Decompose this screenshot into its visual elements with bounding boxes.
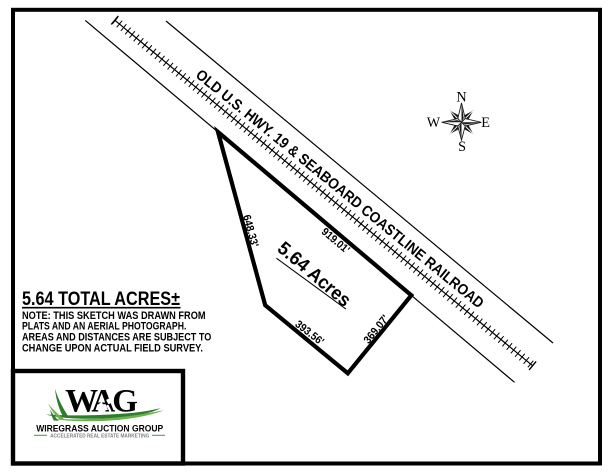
svg-text:W: W	[427, 115, 441, 131]
svg-text:CHANGE UPON ACTUAL FIELD SURVE: CHANGE UPON ACTUAL FIELD SURVEY.	[22, 342, 203, 354]
svg-text:S: S	[458, 139, 466, 155]
svg-text:E: E	[481, 115, 490, 131]
svg-text:N: N	[456, 90, 466, 106]
svg-text:ACCELERATED REAL ESTATE MARKET: ACCELERATED REAL ESTATE MARKETING	[50, 433, 149, 439]
svg-text:5.64 TOTAL ACRES±: 5.64 TOTAL ACRES±	[22, 288, 180, 310]
